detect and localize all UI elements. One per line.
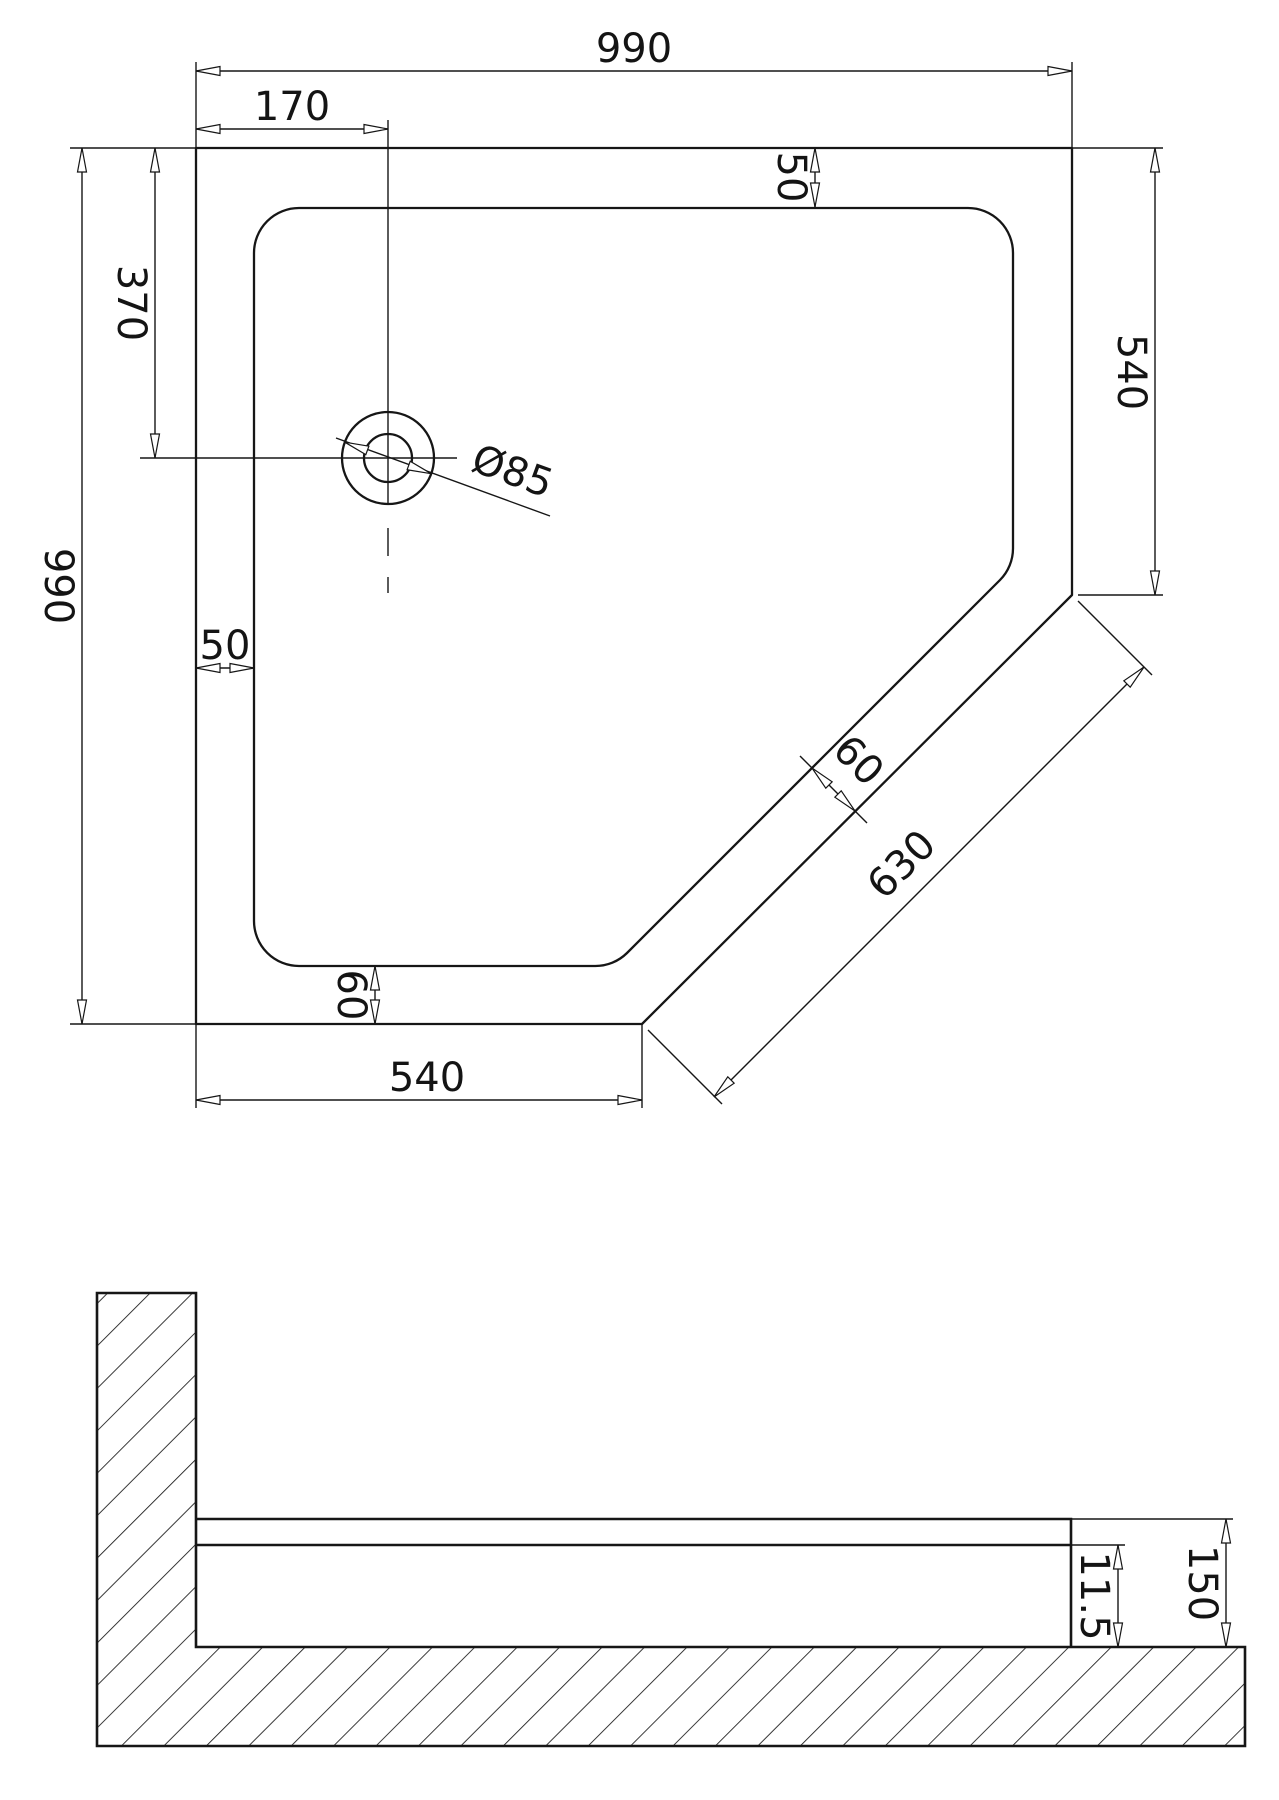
section-extension-lines xyxy=(1071,1519,1233,1545)
technical-drawing: 990 170 50 540 370 990 50 60 630 60 540 … xyxy=(0,0,1279,1800)
dim-label-370: 370 xyxy=(108,265,154,341)
dim-label-60-bottom: 60 xyxy=(328,970,374,1021)
section-dimension-labels: 11.5 150 xyxy=(1071,1545,1225,1641)
dim-line-630-diagonal xyxy=(714,667,1144,1097)
dim-label-11-5: 11.5 xyxy=(1071,1551,1117,1640)
dim-label-50-top-right: 50 xyxy=(768,152,814,203)
dim-label-150: 150 xyxy=(1179,1545,1225,1621)
tray-outer-outline xyxy=(196,148,1072,1024)
dim-label-drain-diameter: Ø85 xyxy=(466,436,559,507)
dim-label-630: 630 xyxy=(859,822,946,909)
dim-label-990-top: 990 xyxy=(596,26,672,72)
dim-label-50-mid-left: 50 xyxy=(200,623,251,669)
plan-dimension-labels: 990 170 50 540 370 990 50 60 630 60 540 … xyxy=(35,26,1154,1101)
dim-label-990-left: 990 xyxy=(35,548,81,624)
dim-label-170: 170 xyxy=(254,84,330,130)
arrowheads xyxy=(78,67,1160,1105)
drawing-sheet: 990 170 50 540 370 990 50 60 630 60 540 … xyxy=(0,0,1279,1800)
plan-view: 990 170 50 540 370 990 50 60 630 60 540 … xyxy=(35,26,1163,1108)
drain-centerlines xyxy=(140,120,457,593)
tray-section-profile xyxy=(196,1519,1071,1647)
dim-label-540-bottom: 540 xyxy=(389,1055,465,1101)
section-view: 11.5 150 xyxy=(97,1293,1245,1746)
dim-label-540-right: 540 xyxy=(1108,334,1154,410)
